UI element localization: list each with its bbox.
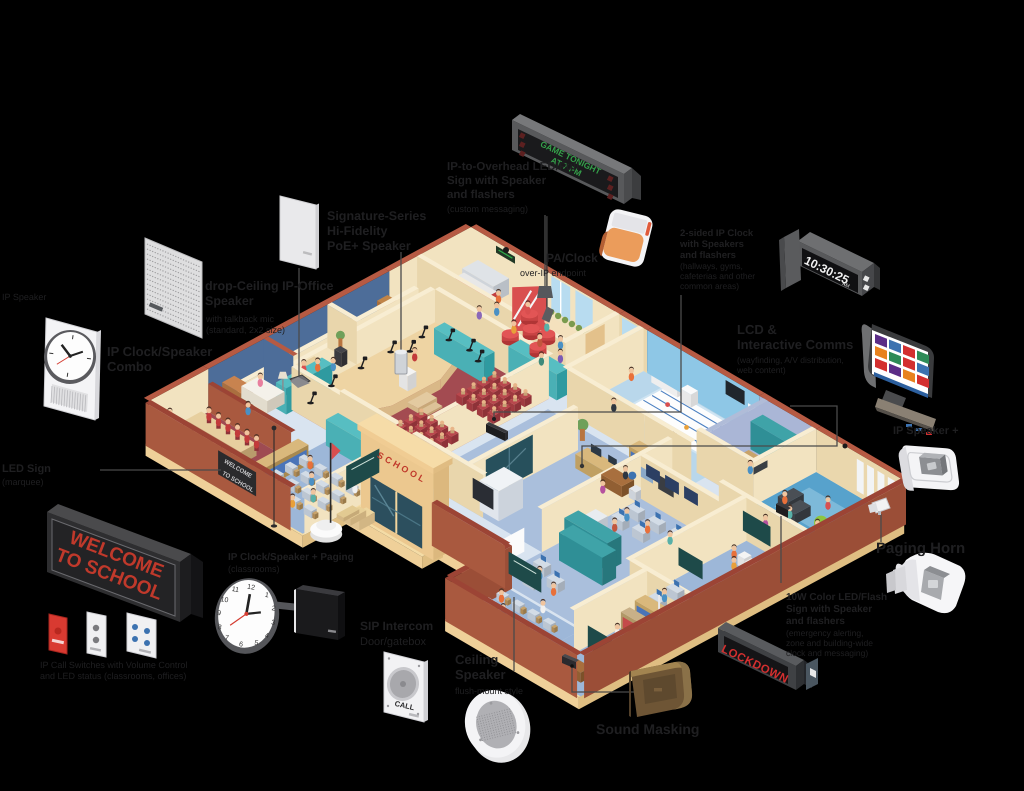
svg-text:(wayfinding, A/V distribution,: (wayfinding, A/V distribution, — [737, 355, 844, 365]
svg-text:Signature-Series: Signature-Series — [327, 209, 426, 223]
svg-text:clock and messaging): clock and messaging) — [786, 648, 868, 658]
svg-text:web content): web content) — [736, 365, 786, 375]
svg-text:IP Call Switches with Volume C: IP Call Switches with Volume Control — [40, 660, 187, 670]
svg-text:PA/Clock: PA/Clock — [546, 251, 598, 265]
svg-text:(marquee): (marquee) — [2, 477, 44, 487]
svg-text:IP Speaker +: IP Speaker + — [893, 425, 959, 437]
svg-text:IP-to-Overhead LED/Full: IP-to-Overhead LED/Full — [447, 161, 579, 173]
svg-text:over-IP endpoint: over-IP endpoint — [520, 268, 586, 278]
svg-text:zone and building-wide: zone and building-wide — [786, 638, 873, 648]
svg-text:Paging Horn: Paging Horn — [876, 540, 965, 557]
svg-text:11: 11 — [231, 586, 239, 594]
svg-text:Door/gatebox: Door/gatebox — [360, 636, 427, 648]
svg-text:IP Clock/Speaker: IP Clock/Speaker — [107, 344, 212, 359]
svg-text:common areas): common areas) — [680, 281, 739, 291]
svg-text:12: 12 — [247, 584, 256, 592]
svg-text:drop-Ceiling IP-Office: drop-Ceiling IP-Office — [205, 279, 334, 293]
svg-text:2-sided IP Clock: 2-sided IP Clock — [680, 228, 754, 239]
svg-text:Combo: Combo — [107, 359, 152, 374]
svg-text:(custom messaging): (custom messaging) — [447, 204, 528, 214]
svg-text:with talkback mic: with talkback mic — [205, 314, 275, 324]
svg-text:LED Sign: LED Sign — [2, 463, 51, 475]
svg-text:Sign with Speaker: Sign with Speaker — [786, 604, 872, 615]
svg-text:Speaker: Speaker — [455, 667, 506, 682]
svg-text:Interactive Comms: Interactive Comms — [737, 337, 853, 352]
svg-text:Sign with Speaker: Sign with Speaker — [447, 175, 547, 187]
svg-text:flush-mount style: flush-mount style — [455, 686, 523, 696]
svg-text:Sound Masking: Sound Masking — [596, 721, 699, 737]
svg-text:(emergency alerting,: (emergency alerting, — [786, 628, 863, 638]
svg-text:IP Clock/Speaker + Paging: IP Clock/Speaker + Paging — [228, 552, 354, 563]
svg-text:(classrooms): (classrooms) — [228, 564, 280, 574]
svg-text:SIP Intercom: SIP Intercom — [360, 619, 433, 633]
svg-text:PoE+ Speaker: PoE+ Speaker — [327, 239, 411, 253]
svg-text:Speaker: Speaker — [205, 294, 254, 308]
svg-text:cafeterias and other: cafeterias and other — [680, 271, 755, 281]
svg-text:10: 10 — [220, 596, 229, 604]
svg-text:and LED status (classrooms, of: and LED status (classrooms, offices) — [40, 671, 186, 681]
svg-text:IP Speaker: IP Speaker — [2, 292, 46, 302]
svg-text:Ceiling: Ceiling — [455, 652, 498, 667]
svg-text:(standard, 2x2 size): (standard, 2x2 size) — [206, 325, 285, 335]
svg-text:and flashers: and flashers — [680, 250, 736, 261]
svg-text:and flashers: and flashers — [447, 189, 515, 201]
svg-text:LCD &: LCD & — [737, 322, 777, 337]
svg-text:with Speakers: with Speakers — [679, 239, 744, 250]
svg-text:Hi-Fidelity: Hi-Fidelity — [327, 224, 387, 238]
svg-text:(hallways, gyms,: (hallways, gyms, — [680, 261, 743, 271]
svg-text:and flashers: and flashers — [786, 616, 845, 627]
svg-text:10W Color LED/Flash: 10W Color LED/Flash — [786, 592, 887, 603]
